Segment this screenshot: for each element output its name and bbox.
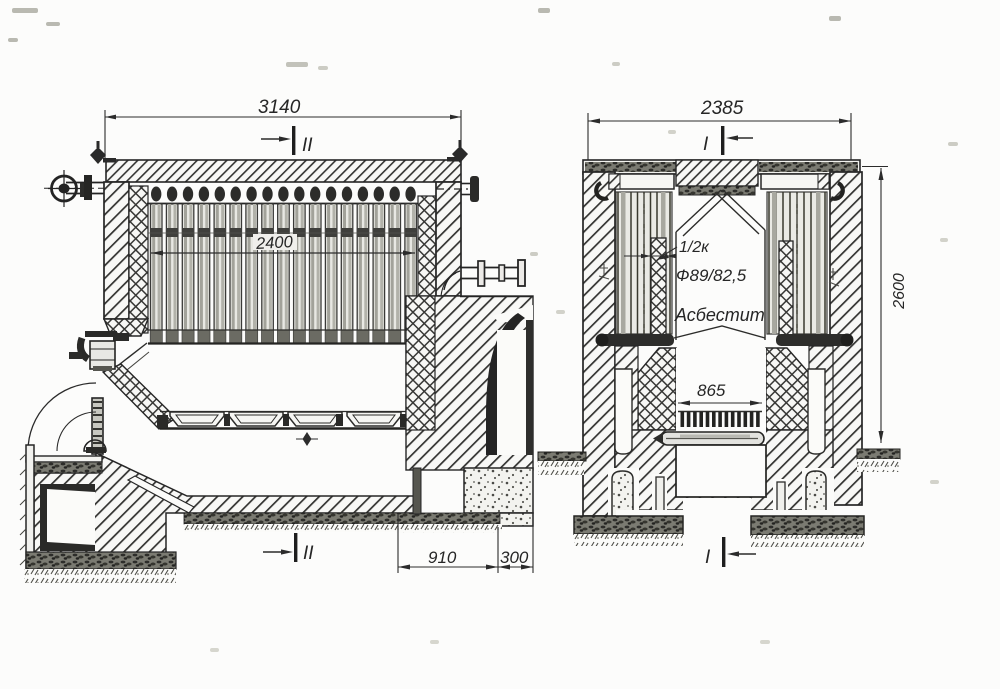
svg-text:II: II	[303, 543, 314, 564]
svg-text:II: II	[302, 135, 313, 156]
svg-text:Асбестит: Асбестит	[674, 305, 765, 325]
svg-text:Ф89/82,5: Ф89/82,5	[676, 266, 747, 285]
svg-text:I: I	[703, 134, 709, 155]
svg-text:910: 910	[428, 548, 457, 567]
svg-text:I: I	[705, 547, 711, 568]
svg-text:2385: 2385	[700, 98, 744, 119]
svg-text:300: 300	[500, 548, 529, 567]
svg-text:865: 865	[697, 381, 726, 400]
svg-text:3140: 3140	[258, 97, 301, 118]
svg-text:2600: 2600	[891, 273, 908, 310]
svg-text:2400: 2400	[255, 233, 294, 253]
svg-text:1/2к: 1/2к	[679, 239, 710, 256]
